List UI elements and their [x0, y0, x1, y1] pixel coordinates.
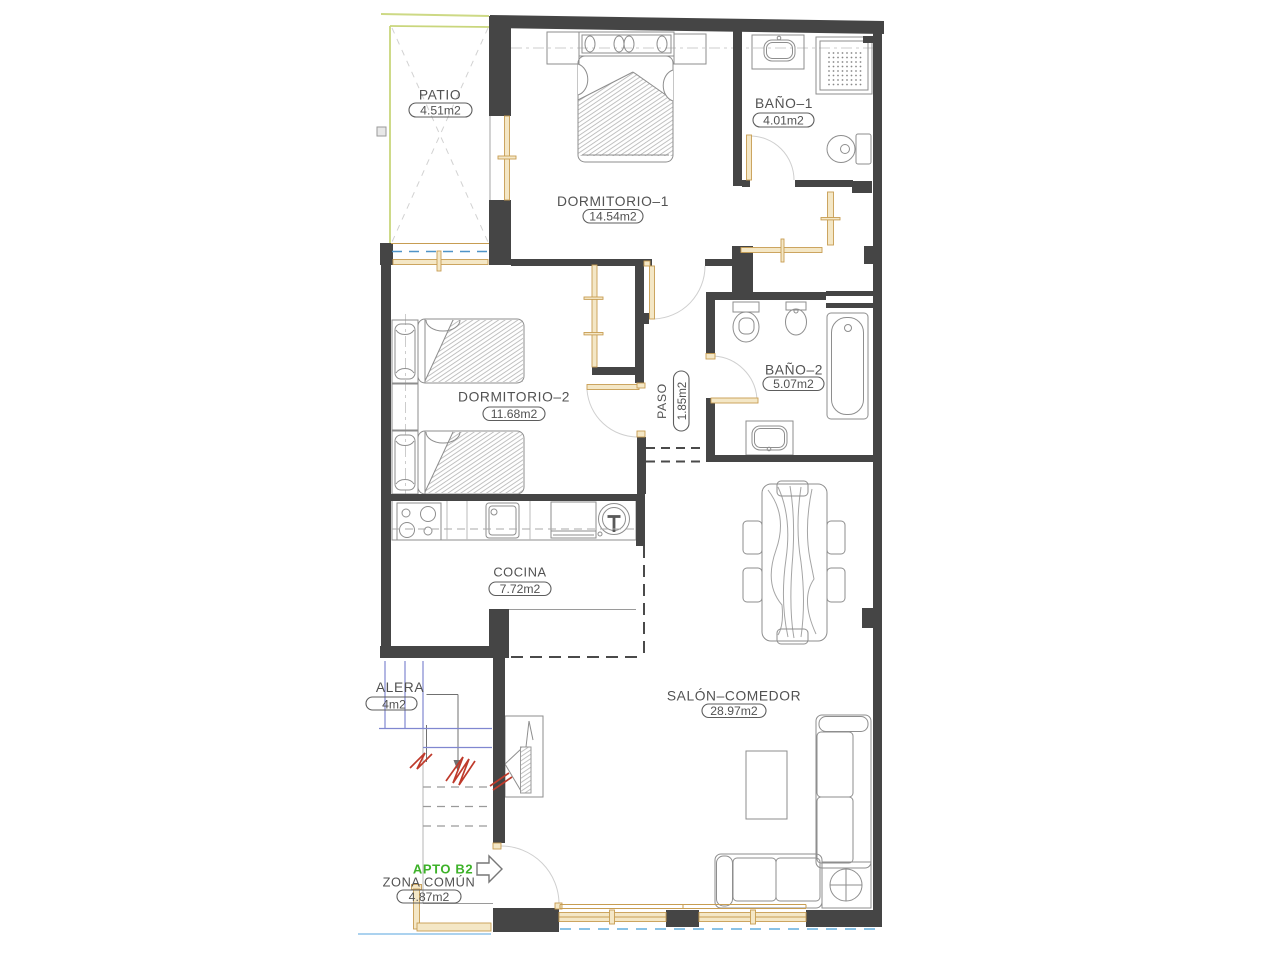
- svg-text:4m2: 4m2: [382, 698, 406, 712]
- svg-text:4.01m2: 4.01m2: [763, 114, 804, 128]
- svg-text:28.97m2: 28.97m2: [710, 704, 758, 718]
- svg-text:PATIO: PATIO: [419, 88, 461, 103]
- svg-text:COCINA: COCINA: [493, 565, 546, 580]
- svg-text:PASO: PASO: [655, 383, 669, 419]
- svg-text:4.87m2: 4.87m2: [409, 890, 450, 904]
- svg-text:5.07m2: 5.07m2: [773, 377, 814, 391]
- svg-text:11.68m2: 11.68m2: [491, 407, 538, 421]
- svg-text:1.85m2: 1.85m2: [677, 382, 689, 420]
- svg-text:ALERA: ALERA: [376, 680, 424, 695]
- svg-text:SALÓN–COMEDOR: SALÓN–COMEDOR: [667, 688, 801, 704]
- svg-text:DORMITORIO–1: DORMITORIO–1: [557, 194, 669, 209]
- svg-text:7.72m2: 7.72m2: [500, 582, 541, 596]
- svg-text:ZONA COMÚN: ZONA COMÚN: [383, 875, 476, 890]
- svg-text:4.51m2: 4.51m2: [420, 104, 461, 118]
- svg-text:14.54m2: 14.54m2: [589, 210, 637, 224]
- svg-text:BAÑO–1: BAÑO–1: [755, 95, 813, 111]
- svg-text:BAÑO–2: BAÑO–2: [765, 362, 823, 378]
- svg-text:APTO B2: APTO B2: [413, 862, 473, 877]
- svg-text:DORMITORIO–2: DORMITORIO–2: [458, 390, 570, 405]
